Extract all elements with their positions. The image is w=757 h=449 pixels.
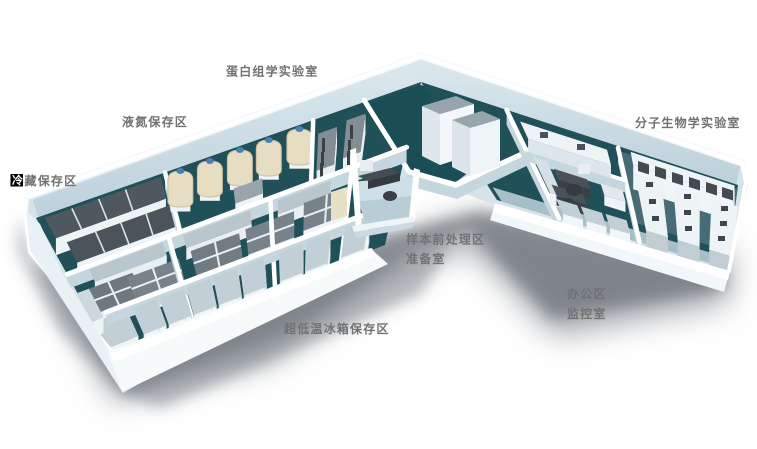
- svg-text:监控室: 监控室: [567, 306, 607, 321]
- svg-text:液氮保存区: 液氮保存区: [122, 114, 188, 129]
- svg-text:办公区: 办公区: [567, 286, 607, 301]
- svg-text:超低温冰箱保存区: 超低温冰箱保存区: [283, 321, 390, 336]
- svg-text:蛋白组学实验室: 蛋白组学实验室: [226, 64, 318, 79]
- svg-text:样本前处理区: 样本前处理区: [406, 232, 485, 247]
- svg-text:藏保存区: 藏保存区: [25, 173, 78, 188]
- svg-text:准备室: 准备室: [406, 251, 446, 266]
- svg-text:分子生物学实验室: 分子生物学实验室: [635, 115, 741, 130]
- svg-text:冷: 冷: [12, 173, 23, 187]
